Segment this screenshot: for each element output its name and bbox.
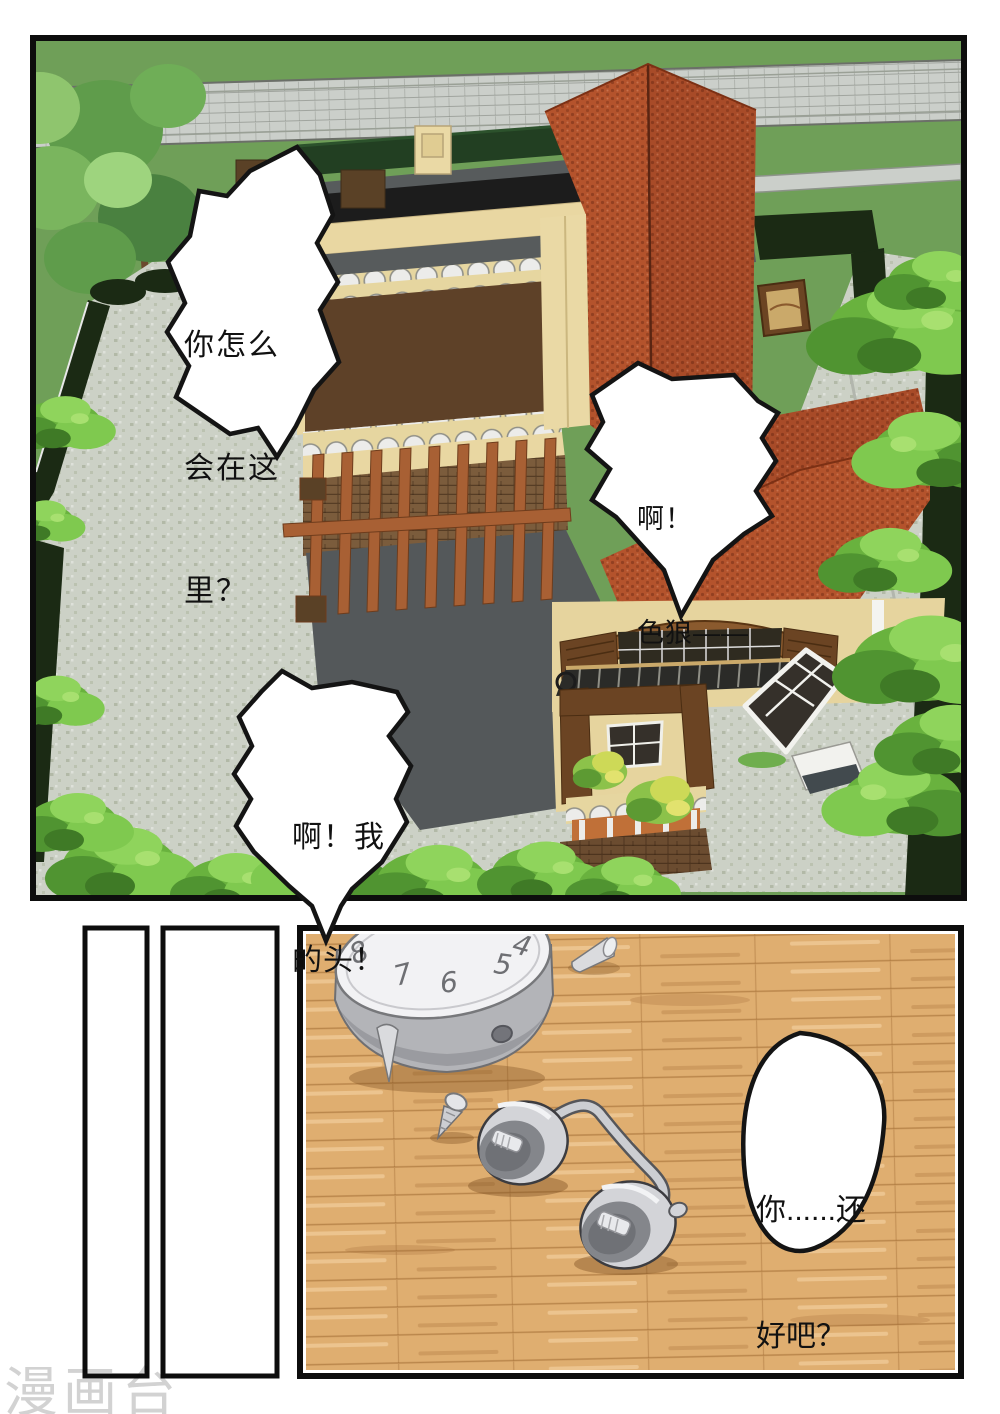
chimney [415,126,451,174]
villa-aerial-scene [0,41,1000,916]
bubble-line: 的头！ [292,940,385,981]
bubble-line: 好吧？ [756,1316,866,1358]
bubble-line: 色狼—— [637,614,749,652]
clock-number-6: 6 [438,965,459,1000]
bubble-line: 你怎么 [184,325,280,366]
bubble-line: 啊！ [637,500,749,538]
empty-panel-1 [85,928,147,1376]
watermark: 漫画台 [4,1348,181,1414]
bubble-line: 里？ [184,571,280,612]
empty-panel-2 [163,928,277,1376]
comic-page: 你怎么 会在这 里？ 啊！ 色狼—— 啊！我 的头！ 你......还 好吧？ … [0,0,1000,1414]
bubble-text-scream-right: 啊！ 色狼—— [637,424,749,690]
bubble-line: 你......还 [756,1190,866,1232]
bubble-text-shout-left: 你怎么 会在这 里？ [184,243,280,653]
courtyard-skylight [758,280,810,336]
roof-cap [341,170,385,208]
bubble-text-my-head: 啊！我 的头！ [292,735,385,1022]
bubble-text-are-you-ok: 你......还 好吧？ [756,1106,866,1400]
bubble-line: 会在这 [184,448,280,489]
bubble-line: 啊！我 [292,817,385,858]
